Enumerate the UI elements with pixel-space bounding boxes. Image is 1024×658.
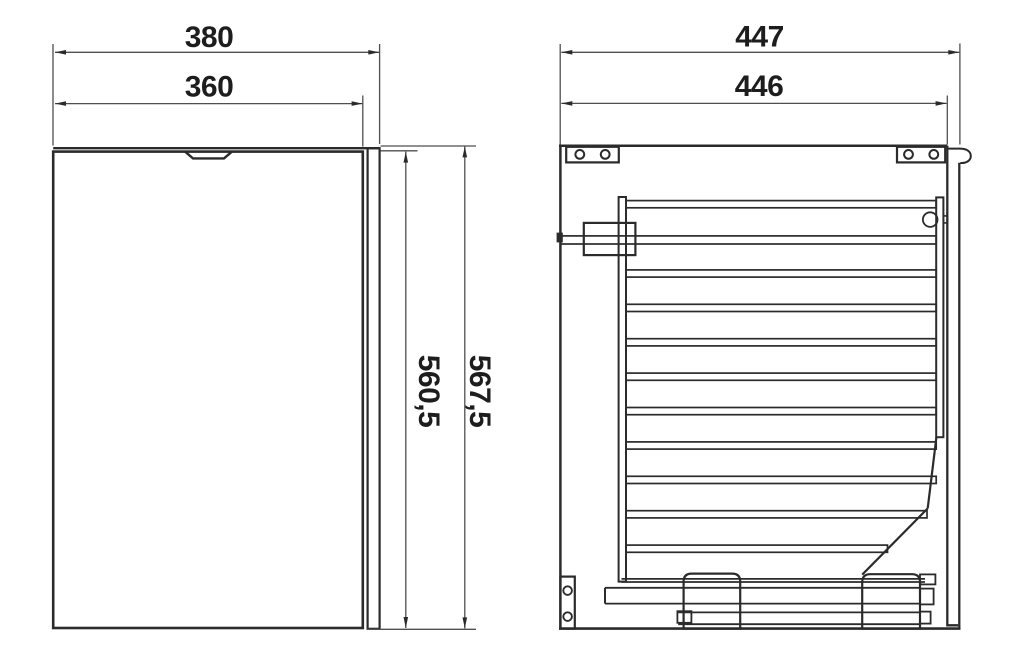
foot-right-middle-tab xyxy=(920,589,934,605)
rung-bar xyxy=(626,339,936,346)
mounting-bracket-left xyxy=(566,147,619,163)
rung-bar xyxy=(626,373,936,380)
rung-bar xyxy=(626,201,936,208)
dim-label-height-inner: 560,5 xyxy=(412,355,445,428)
rung-bar xyxy=(626,304,936,311)
rung-bar xyxy=(626,476,936,483)
bracket-hole xyxy=(563,612,572,621)
side-edge-strip xyxy=(368,148,380,629)
basket-rungs xyxy=(560,201,936,553)
front-view xyxy=(53,148,379,629)
basket-right-rail xyxy=(936,197,943,437)
bracket-hole xyxy=(563,586,572,595)
door-panel xyxy=(53,152,363,628)
drawing-canvas: 380 360 560,5 567,5 xyxy=(0,0,1024,658)
dim-label-width-outer: 380 xyxy=(185,21,234,54)
slope-line-upper xyxy=(928,437,937,508)
foot-right-lower-tab xyxy=(920,612,931,624)
dim-label-height-outer: 567,5 xyxy=(463,355,496,428)
front-frame xyxy=(947,146,958,626)
slide-rail-middle xyxy=(605,588,920,604)
bracket-hole xyxy=(601,150,610,159)
bracket-hole xyxy=(904,150,913,159)
rung-bar xyxy=(626,442,936,449)
slide-rail-top xyxy=(622,579,926,582)
dim-label-depth-outer: 447 xyxy=(735,21,784,54)
dim-label-depth-inner: 446 xyxy=(735,70,784,103)
door-edge-profile xyxy=(947,149,971,163)
slide-rails xyxy=(605,579,925,624)
slide-rail-bottom xyxy=(678,612,920,624)
bracket-hole xyxy=(575,150,584,159)
front-view-dimensions: 380 360 560,5 567,5 xyxy=(53,21,496,629)
rung-bar xyxy=(626,511,927,518)
technical-drawing: 380 360 560,5 567,5 xyxy=(0,0,1024,658)
rung-bar xyxy=(560,236,936,244)
wall-fitting-block xyxy=(557,233,563,243)
rung-bar xyxy=(626,408,936,415)
pivot-stub xyxy=(943,216,947,223)
rung-bar xyxy=(626,545,888,552)
side-view-dimensions: 447 446 xyxy=(560,21,960,145)
rung-bar xyxy=(626,270,936,277)
dim-label-width-inner: 360 xyxy=(185,71,234,104)
side-view xyxy=(557,146,971,629)
mounting-box xyxy=(584,223,636,255)
bracket-hole xyxy=(929,150,938,159)
